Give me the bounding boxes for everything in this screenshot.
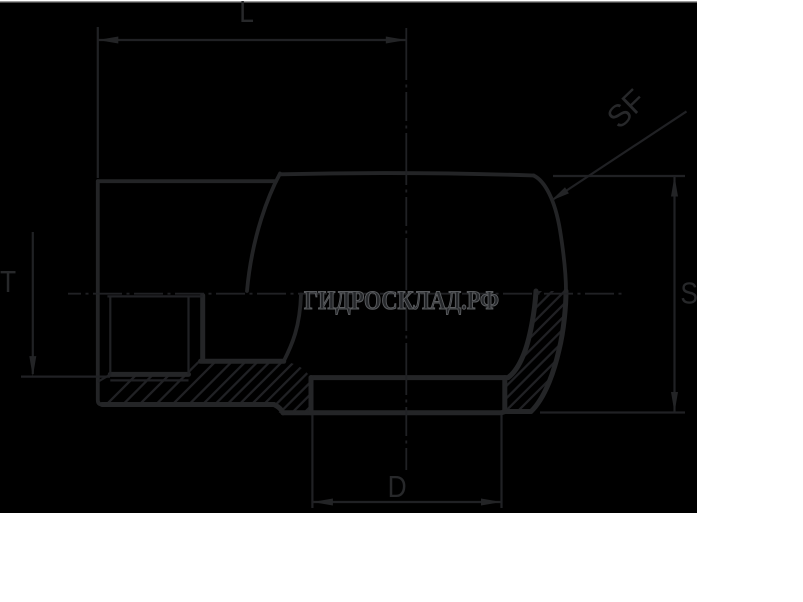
svg-text:S: S [680,277,698,311]
svg-text:L: L [239,0,254,30]
svg-text:ГИДРОСКЛАД.РФ: ГИДРОСКЛАД.РФ [304,286,499,315]
svg-text:T: T [0,265,16,299]
svg-text:D: D [388,470,407,504]
